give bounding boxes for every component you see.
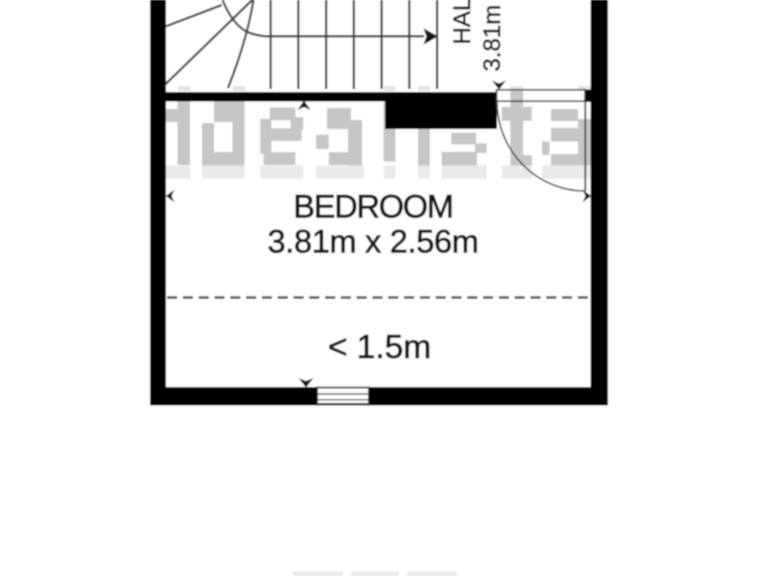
svg-text:HALL: HALL (449, 0, 476, 45)
svg-text:BEDROOM: BEDROOM (293, 188, 453, 224)
svg-text:3.81m x 2.56m: 3.81m x 2.56m (267, 224, 478, 260)
svg-text:3.81m: 3.81m (479, 5, 506, 72)
svg-text:< 1.5m: < 1.5m (328, 329, 431, 366)
